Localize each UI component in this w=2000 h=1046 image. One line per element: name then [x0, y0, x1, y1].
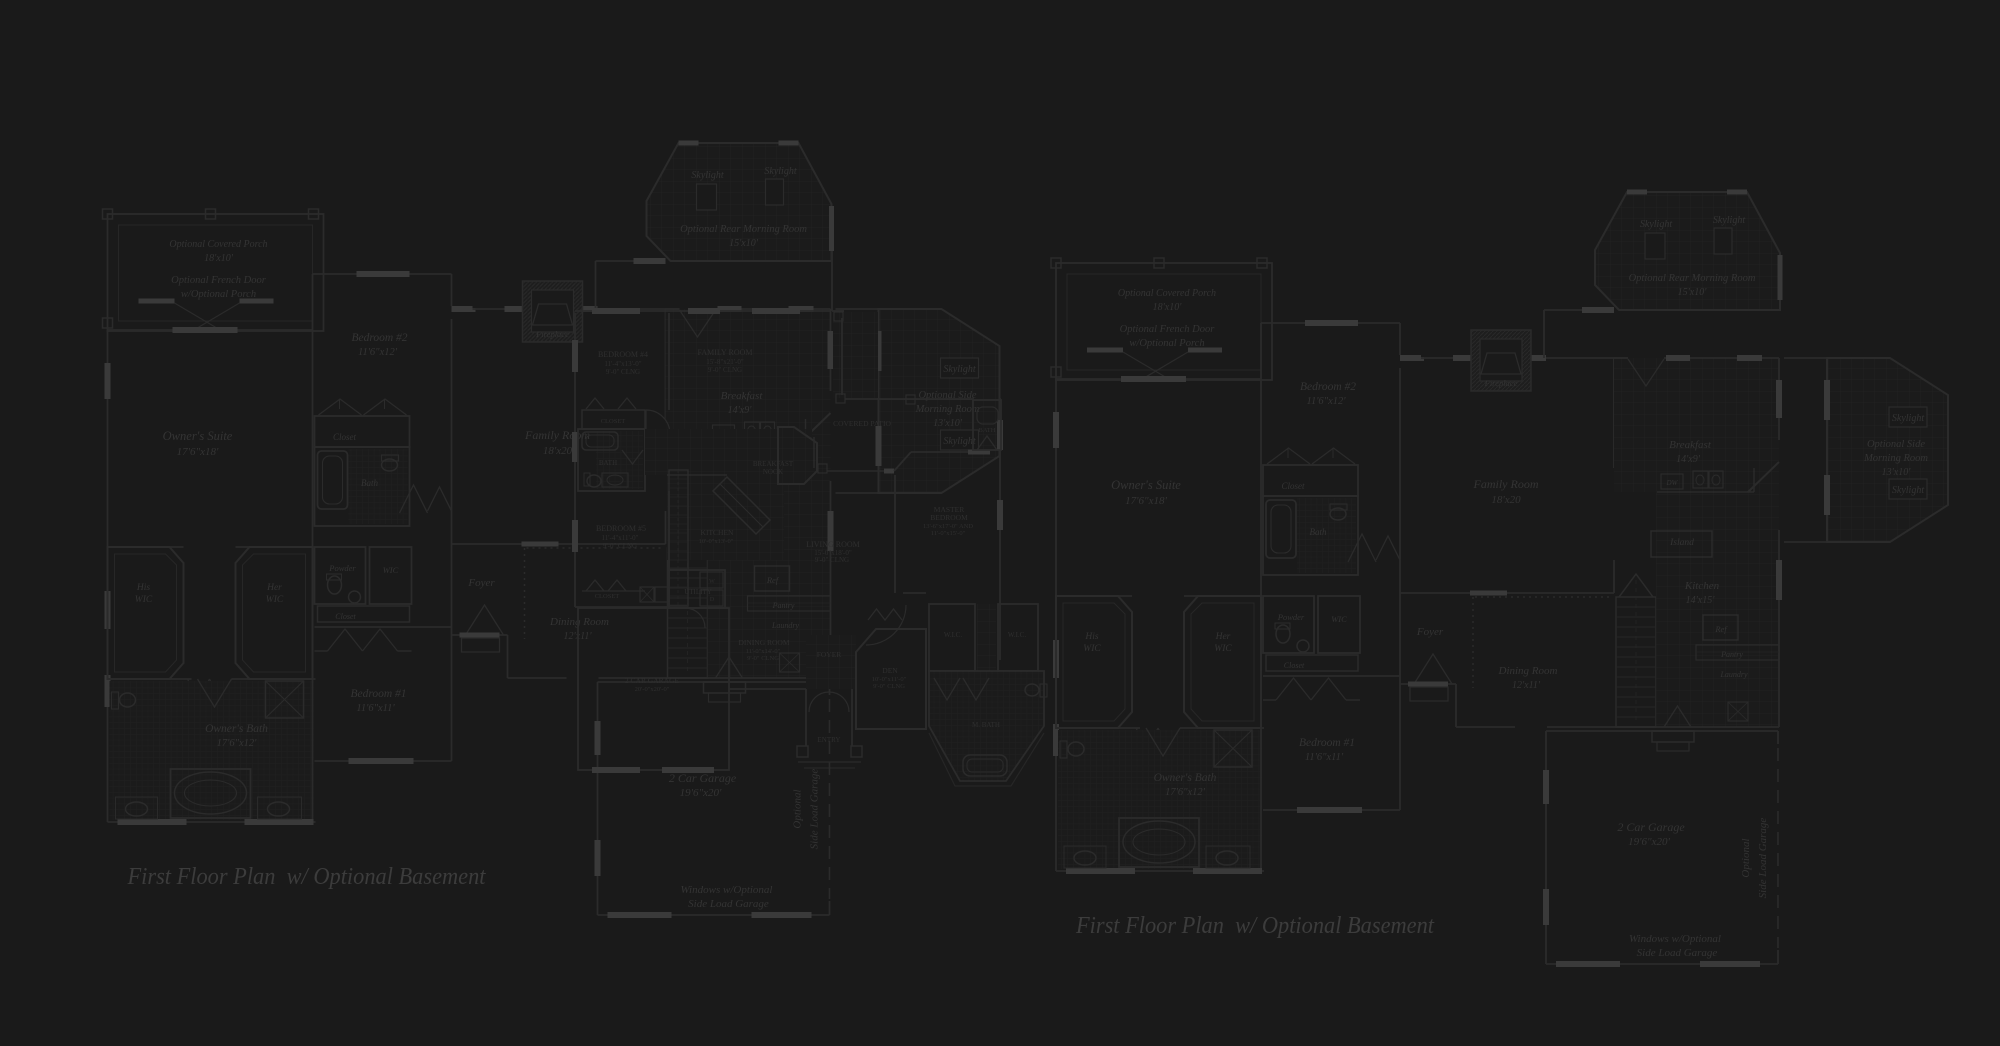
svg-text:15'-8"x21'-0": 15'-8"x21'-0"	[706, 358, 744, 366]
svg-text:M. BATH: M. BATH	[972, 721, 1000, 729]
svg-text:10'-0"x11'-0": 10'-0"x11'-0"	[872, 676, 907, 683]
svg-text:BATH: BATH	[599, 459, 617, 467]
svg-text:11'-0"x15'-0": 11'-0"x15'-0"	[931, 530, 966, 537]
svg-text:10'-0"x13'-0": 10'-0"x13'-0"	[699, 538, 734, 545]
svg-text:NOOK: NOOK	[763, 468, 783, 476]
svg-text:W: W	[709, 579, 715, 585]
svg-text:COVERED PATIO: COVERED PATIO	[833, 419, 891, 428]
svg-text:BATH: BATH	[979, 427, 996, 434]
svg-text:W.I.C.: W.I.C.	[1008, 631, 1026, 639]
svg-text:UTILITY: UTILITY	[684, 588, 712, 596]
svg-text:ENTRY: ENTRY	[818, 736, 841, 744]
svg-text:BEDROOM #5: BEDROOM #5	[596, 524, 646, 533]
svg-text:9'-0" CLNG: 9'-0" CLNG	[873, 683, 905, 690]
svg-text:11'-0"x14'-0": 11'-0"x14'-0"	[746, 648, 781, 655]
svg-text:BEDROOM: BEDROOM	[930, 513, 968, 522]
svg-text:DINING ROOM: DINING ROOM	[738, 638, 789, 647]
svg-text:9'-0" CLNG: 9'-0" CLNG	[747, 655, 779, 662]
svg-text:20'-0"x20'-0": 20'-0"x20'-0"	[635, 686, 670, 693]
svg-text:W.I.C.: W.I.C.	[944, 631, 962, 639]
svg-text:BEDROOM #4: BEDROOM #4	[598, 350, 648, 359]
svg-text:9'-0" CLNG: 9'-0" CLNG	[603, 542, 637, 550]
svg-text:FOYER: FOYER	[817, 650, 842, 659]
svg-text:KITCHEN: KITCHEN	[701, 528, 734, 537]
svg-text:9'-0" CLNG: 9'-0" CLNG	[815, 556, 849, 564]
svg-text:13'-6"x17'-0" AND: 13'-6"x17'-0" AND	[923, 523, 973, 530]
svg-text:D: D	[710, 597, 715, 603]
svg-text:CLOSET: CLOSET	[595, 593, 620, 600]
svg-text:11'-4"x11'-0": 11'-4"x11'-0"	[602, 534, 639, 542]
svg-text:9'-0" CLNG: 9'-0" CLNG	[606, 368, 640, 376]
svg-text:LIVING ROOM: LIVING ROOM	[806, 540, 860, 549]
svg-text:11'-4"x13'-0": 11'-4"x13'-0"	[604, 360, 641, 368]
svg-text:9'-0" CLNG: 9'-0" CLNG	[708, 366, 742, 374]
svg-text:FAMILY ROOM: FAMILY ROOM	[698, 348, 753, 357]
svg-text:DEN: DEN	[882, 666, 898, 675]
svg-text:CLOSET: CLOSET	[601, 418, 626, 425]
svg-text:BREAKFAST: BREAKFAST	[753, 460, 794, 468]
svg-text:2 CAR GARAGE: 2 CAR GARAGE	[625, 676, 680, 685]
